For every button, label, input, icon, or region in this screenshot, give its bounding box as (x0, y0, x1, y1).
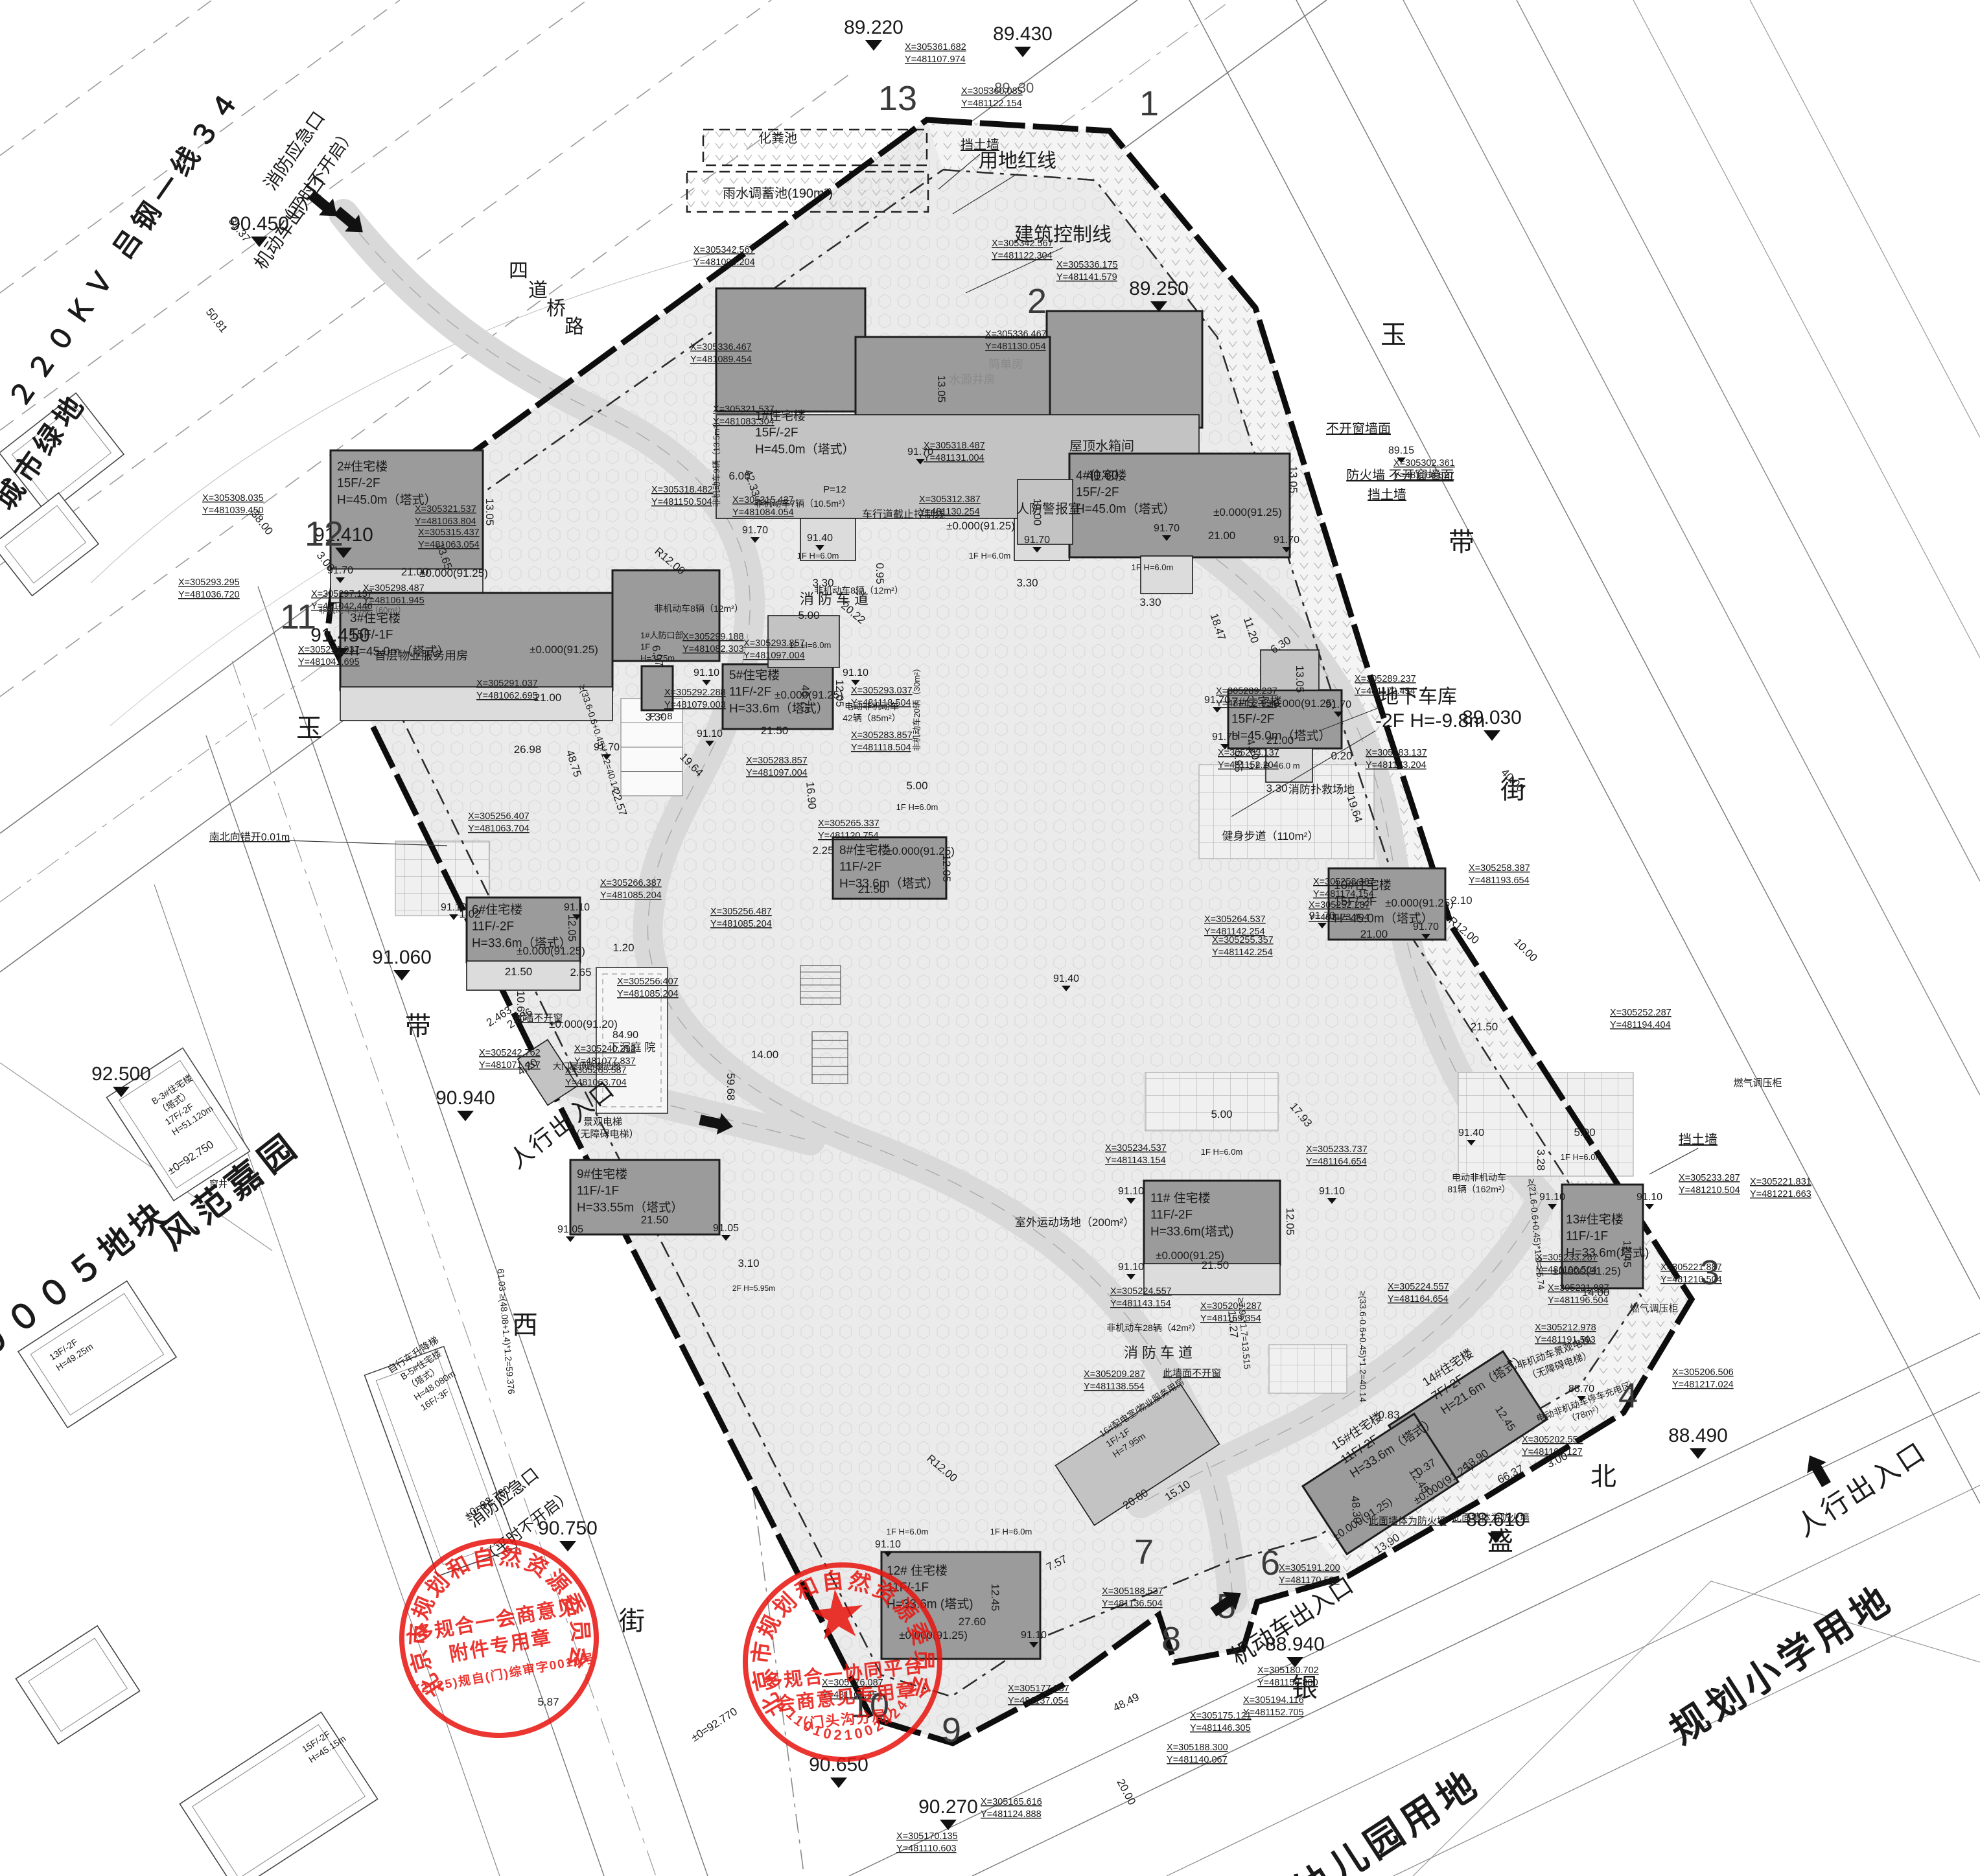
road-elevation: 88.490 (1668, 1425, 1728, 1446)
coordinate-y: Y=481143.154 (1105, 1155, 1166, 1166)
label-fire-site: 消防扑救场地 (1288, 783, 1355, 796)
stamp-center-line: (2025)规自(门)综审字0010号 (414, 1650, 596, 1697)
dimension: 13.05 (483, 498, 496, 526)
spot-elevation: 91.10 (843, 667, 868, 678)
coordinate-x: X=305170.135 (896, 1831, 958, 1842)
street-yudai-east-2: 带 (1449, 528, 1474, 557)
dimension: 3.30 (1266, 782, 1287, 794)
coordinate-y: Y=481097.004 (746, 768, 808, 778)
coordinate-y: Y=481170.534 (1279, 1575, 1340, 1586)
dimension: 26.98 (514, 743, 542, 756)
coordinate-y: Y=481217.024 (1672, 1380, 1734, 1390)
coordinate-y: Y=481082.303 (682, 644, 744, 654)
street-sidaoqiao-2: 道 (528, 280, 548, 301)
label-window-well: 窗井 (209, 1179, 227, 1189)
coordinate-y: Y=481061.945 (363, 596, 425, 606)
level-annotation: ±0.000(91.25) (1213, 506, 1282, 518)
coordinate-y: Y=481196.504 (1536, 1265, 1597, 1275)
dimension: ≥(33.6-0.6+0.45)*1.2=40.14 (1358, 1291, 1368, 1402)
coordinate-x: X=305336.467 (690, 342, 752, 353)
coordinate-x: X=305258.387 (1469, 863, 1530, 874)
coordinate-y: Y=481138.554 (1084, 1382, 1145, 1392)
entrance-arrow (1800, 1450, 1835, 1490)
coordinate-y: Y=481140.067 (1167, 1755, 1228, 1765)
building-label-line: 11F/-2F (1150, 1209, 1193, 1222)
label-ped-entrance-right: 人行出入口 (1791, 1435, 1933, 1542)
boundary-corner-number: 8 (1161, 1620, 1181, 1659)
coordinate-y: Y=481110.603 (896, 1844, 957, 1854)
coordinate-y: Y=481077.837 (574, 1056, 636, 1067)
label-1f6-4: 1F H=6.0m (896, 802, 938, 812)
coordinate-x: X=305221.887 (1548, 1283, 1609, 1293)
spot-elevation: 91.10 (1118, 1262, 1144, 1273)
coordinate-y: Y=481130.254 (919, 507, 980, 517)
coordinate-y: Y=481146.305 (1190, 1723, 1251, 1733)
coordinate-y: Y=481118.504 (851, 698, 911, 708)
coordinate-x: X=305293.295 (178, 577, 240, 588)
coordinate-x: X=305194.116 (1243, 1695, 1304, 1706)
dimension: 13.05 (935, 375, 948, 403)
spot-elevation: 91.05 (557, 1224, 583, 1235)
road-elevation: 89.430 (993, 23, 1053, 45)
elevation-triangle (1484, 730, 1500, 741)
bldg-4-stub (1141, 556, 1193, 594)
street-yudai-west-1: 玉 (296, 714, 322, 743)
street-sidaoqiao-3: 桥 (546, 298, 566, 319)
dimension: 3.30 (1139, 596, 1161, 608)
coordinate-x: X=305315.437 (418, 527, 480, 538)
street-yudai-west-4: 街 (619, 1607, 645, 1636)
label-gas-box-2: 燃气调压柜 (1629, 1303, 1678, 1314)
coordinate-y: Y=481173.204 (1366, 760, 1427, 770)
coordinate-x: X=305283.137 (1218, 748, 1279, 758)
coordinate-y: Y=481130.054 (985, 342, 1046, 352)
label-nm9: 非机动车9辆（13.5m²） (712, 417, 721, 507)
spot-elevation: 88.70 (1568, 1384, 1594, 1395)
coordinate-x: X=305321.537 (415, 504, 476, 515)
label-1f6-10: 1F H=6.0m (1132, 562, 1174, 572)
building-label-line: H=45.0m（塔式） (755, 442, 855, 456)
dimension: 12.05 (566, 914, 578, 942)
dimension: 12.05 (833, 680, 846, 708)
building-label-line: 2#住宅楼 (337, 459, 388, 474)
boundary-corner-number: 11 (280, 597, 316, 636)
coordinate-x: X=305336.175 (1056, 260, 1118, 270)
spot-elevation: 91.10 (1636, 1192, 1662, 1203)
coordinate-x: X=305175.121 (1190, 1711, 1252, 1721)
coordinate-y: Y=481083.304 (713, 417, 775, 427)
coordinate-y: Y=481124.888 (981, 1809, 1042, 1820)
dimension: 5.00 (1574, 1126, 1595, 1139)
building-label-line: 11F/-2F (729, 686, 771, 699)
boundary-corner-number: 13 (878, 79, 917, 118)
coordinate-y: Y=481152.954 (1216, 699, 1277, 709)
coordinate-y: Y=481063.704 (468, 824, 530, 834)
coordinate-x: X=305252.287 (1309, 900, 1370, 910)
building-label-line: 5#住宅楼 (729, 668, 780, 682)
road-elevation: 89.250 (1129, 278, 1189, 299)
label-water-well: 水源井房 (949, 373, 996, 386)
coordinate-x: X=305234.537 (1105, 1143, 1167, 1153)
road-elevation: 89.030 (1462, 707, 1522, 728)
road-line (0, 0, 212, 156)
spot-elevation: 91.70 (1212, 732, 1238, 743)
road-line (1633, 0, 1980, 658)
coordinate-y: Y=481152.204 (1218, 760, 1279, 770)
coordinate-x: X=305224.557 (1388, 1282, 1449, 1292)
coordinate-x: X=305315.437 (732, 495, 794, 505)
coordinate-x: X=305318.482 (651, 485, 713, 495)
dimension: 13.05 (1294, 666, 1306, 693)
coordinate-y: Y=481090.204 (693, 257, 755, 268)
dimension: 21.50 (641, 1214, 669, 1226)
coordinate-x: X=305293.857 (743, 638, 805, 649)
dimension: 50.81 (204, 306, 230, 335)
coordinate-x: X=305224.557 (1110, 1286, 1172, 1297)
spot-elevation: 91.10 (875, 1539, 901, 1550)
spot-elevation: 91.40 (807, 533, 833, 544)
coordinate-y: Y=481142.254 (1212, 947, 1273, 958)
dimension: 13.05 (1287, 466, 1299, 494)
boundary-corner-number: 12 (305, 515, 344, 553)
site-plan-sheet: 1#住宅楼15F/-2FH=45.0m（塔式）2#住宅楼15F/-2FH=45.… (0, 0, 1980, 1876)
label-sunken-1: 84.90 (612, 1030, 638, 1041)
coordinate-y: Y=481079.003 (664, 700, 726, 710)
label-ev42-2: 42辆（85m²） (843, 713, 900, 723)
coordinate-x: X=305283.137 (1366, 748, 1427, 758)
coordinate-y: Y=481150.504 (651, 497, 712, 507)
bldg-7-wing (1261, 650, 1319, 690)
coordinate-y: Y=481141.579 (1056, 272, 1117, 283)
plaza-grid (1145, 1072, 1278, 1131)
label-ev81-2: 81辆（162m²） (1447, 1184, 1510, 1194)
building-label-line: 11F/-1F (1566, 1230, 1608, 1244)
level-annotation: ±0=92.770 (689, 1705, 740, 1744)
coordinate-x: X=305291.037 (476, 678, 538, 689)
road-elevation: 90.750 (538, 1518, 598, 1539)
coordinate-y: Y=481089.454 (690, 354, 752, 365)
coordinate-x: X=305308.035 (202, 493, 264, 504)
dimension: 16.90 (804, 782, 819, 810)
coordinate-x: X=305342.567 (693, 245, 755, 255)
building-label-line: 11F/-2F (839, 861, 881, 874)
coordinate-y: Y=481085.204 (710, 919, 772, 929)
plaza-grid (1269, 1345, 1347, 1393)
spot-elevation: 91.10 (1118, 1186, 1144, 1197)
building-label-line: 8#住宅楼 (839, 843, 890, 857)
spot-elevation: 91.70 (1154, 523, 1180, 534)
dimension: 1.20 (612, 942, 634, 954)
coordinate-x: X=305266.387 (600, 878, 662, 888)
street-sidaoqiao-1: 四 (509, 261, 528, 282)
dimension: 3.10 (738, 1257, 759, 1269)
coordinate-y: Y=481159.354 (1200, 1314, 1261, 1324)
label-retain-wall-right2: 挡土墙 (1679, 1132, 1718, 1147)
building-label-line: 15F/-2F (1076, 486, 1119, 500)
coordinate-y: Y=481085.204 (600, 890, 662, 901)
level-annotation: ±0.000(91.25) (1385, 897, 1454, 909)
road-elevation: 90.270 (918, 1796, 978, 1818)
label-fitness: 健身步道（110m²） (1222, 830, 1319, 842)
coordinate-y: Y=481164.654 (1388, 1294, 1449, 1304)
dimension: 21.50 (858, 883, 886, 896)
label-nowindow-ne: 不开窗墙面 (1326, 421, 1391, 436)
coordinate-y: Y=481221.663 (1750, 1189, 1811, 1199)
coordinate-y: Y=481173.404 (1309, 912, 1369, 923)
elevation-triangle (559, 1541, 576, 1551)
street-yudai-east-1: 玉 (1380, 321, 1406, 349)
coordinate-y: Y=481107.974 (905, 54, 966, 65)
stamp-star: ★ (804, 1575, 872, 1656)
road-elevation: 88.940 (1265, 1634, 1325, 1655)
dimension: 2.10 (1450, 894, 1472, 907)
coordinate-x: X=305293.037 (851, 686, 913, 696)
coordinate-x: X=305292.288 (664, 688, 726, 698)
label-1f6-7: 1F H=6.0m (1561, 1152, 1603, 1162)
label-lift-1: 景观电梯 (583, 1117, 622, 1128)
coordinate-x: X=305336.467 (985, 329, 1047, 340)
coordinate-y: Y=481174.154 (1313, 889, 1374, 899)
building-label-line: 13#住宅楼 (1566, 1212, 1624, 1227)
dimension: 21.00 (1208, 529, 1236, 542)
nb-0005-b (180, 1712, 377, 1876)
dimension: 12.05 (1284, 1208, 1296, 1236)
dimension: 21.50 (761, 724, 789, 737)
coordinate-y: Y=481097.004 (743, 651, 805, 661)
spot-elevation: 91.10 (1319, 1186, 1345, 1197)
road-elevation: 91.060 (372, 947, 432, 968)
dimension: 27.60 (959, 1615, 986, 1628)
label-1f6-2: 1F H=6.0m (797, 551, 839, 561)
road-line (1403, 0, 1980, 1095)
coordinate-x: X=305256.487 (710, 907, 772, 917)
label-gas-box-1: 燃气调压柜 (1733, 1077, 1782, 1089)
building-label-line: 1F (640, 642, 650, 652)
label-rain-pool: 雨水调蓄池(190m³) (723, 186, 833, 201)
coordinate-x: X=305342.567 (992, 238, 1053, 249)
coordinate-y: Y=481041.695 (298, 657, 360, 667)
road-elevation: 91.450 (310, 625, 370, 646)
dimension: 0.95 (874, 562, 886, 584)
coordinate-y: Y=481143.154 (1110, 1299, 1171, 1309)
elevation-triangle (566, 1236, 575, 1242)
dimension: 10.00 (1031, 498, 1043, 526)
dimension: 21.00 (1266, 734, 1294, 747)
coordinate-y: Y=481039.450 (202, 505, 264, 516)
coordinate-x: X=305242.762 (479, 1048, 541, 1058)
coordinate-y: Y=481142.254 (1204, 927, 1265, 937)
dimension: 5.00 (906, 780, 927, 792)
label-nm28: 非机动车28辆（42m²） (1106, 1323, 1200, 1333)
dimension: 21.50 (505, 966, 533, 978)
dimension: 5.00 (798, 609, 819, 621)
leader-line (1649, 1148, 1698, 1174)
dimension: 12.05 (940, 855, 953, 883)
building-label-line: 9#住宅楼 (577, 1167, 627, 1181)
coordinate-x: X=305289.237 (1355, 674, 1416, 684)
label-p12: P=12 (823, 484, 846, 495)
label-1f6-5: 1F H=6.0m (1201, 1147, 1243, 1157)
label-2f595: 2F H=5.95m (732, 1284, 775, 1293)
elevation-triangle (1014, 47, 1031, 57)
label-nm20: 非机动车20辆（30m²） (912, 664, 922, 751)
label-roof-tank: 屋顶水箱间 (1069, 439, 1134, 454)
elevation-triangle (1645, 1204, 1654, 1210)
building-label-line: H=33.55m（塔式） (577, 1200, 683, 1214)
building-label-line: 12# 住宅楼 (887, 1564, 948, 1578)
label-septic: 化粪池 (758, 131, 797, 146)
building-label-line: 15F/-2F (755, 426, 798, 440)
label-simple-house: 简单房 (988, 358, 1023, 371)
elevation-triangle (393, 970, 410, 980)
coordinate-x: X=305298.487 (363, 583, 425, 594)
coordinate-y: Y=481131.004 (924, 453, 984, 463)
coordinate-x: X=305206.506 (1672, 1367, 1734, 1378)
road-elevation: 89.220 (844, 17, 903, 38)
spot-elevation: 91.10 (693, 667, 719, 678)
label-sport: 室外运动场地（200m²） (1015, 1216, 1134, 1229)
building-label-line: 15F/-2F (337, 477, 380, 491)
spot-elevation: 91.70 (1274, 535, 1299, 546)
spot-elevation: 91.05 (713, 1223, 739, 1234)
coordinate-x: X=305188.300 (1167, 1743, 1228, 1753)
street-yinsheng-3: 北 (1590, 1463, 1616, 1491)
coordinate-y: Y=481136.504 (1102, 1599, 1163, 1609)
spot-elevation: 91.40 (1053, 973, 1079, 984)
street-yudai-west-3: 西 (512, 1311, 538, 1339)
coordinate-x: X=305233.287 (1536, 1253, 1598, 1263)
building-label-line: 15F/-2F (1231, 713, 1275, 726)
label-retain-wall-top: 挡土墙 (961, 137, 999, 152)
coordinate-x: X=305221.831 (1750, 1177, 1811, 1187)
spot-elevation: 91.70 (1413, 921, 1439, 932)
coordinate-y: Y=481194.404 (1610, 1020, 1671, 1030)
elevation-triangle (449, 914, 458, 920)
coordinate-y: Y=481191.503 (1535, 1335, 1596, 1345)
coordinate-x: X=305191.200 (1279, 1563, 1340, 1573)
coordinate-x: X=305233.287 (1679, 1173, 1740, 1183)
coordinate-y: Y=481122.304 (992, 251, 1053, 261)
boundary-corner-number: 2 (1027, 282, 1047, 321)
coordinate-x: X=305256.407 (617, 977, 679, 987)
coordinate-x: X=305188.537 (1102, 1586, 1163, 1597)
street-yinsheng-2: 盛 (1487, 1527, 1513, 1556)
coordinate-y: Y=481118.504 (851, 743, 911, 753)
label-renfang-alarm: 人防警报室 (1016, 502, 1081, 516)
spot-elevation: 91.70 (1325, 699, 1351, 710)
coordinate-x: X=305209.287 (1200, 1301, 1262, 1312)
road-elevation: 90.940 (436, 1087, 495, 1109)
label-220kv-line: ２２０ＫＶ 吕钢一线３４ (3, 81, 248, 413)
coordinate-y: Y=481084.054 (732, 507, 794, 518)
dimension: 5.00 (1211, 1108, 1232, 1120)
coordinate-y: Y=481164.654 (1306, 1157, 1367, 1167)
boundary-corner-number: 3 (1700, 1253, 1719, 1292)
coordinate-x: X=305177.887 (1008, 1684, 1069, 1694)
coordinate-y: Y=481137.054 (1008, 1696, 1069, 1706)
dimension: 21.50 (1471, 1021, 1498, 1033)
label-kindergarten: 幼儿园用地 (1285, 1762, 1487, 1876)
dimension: 3.30 (812, 577, 833, 589)
coordinate-x: X=305318.487 (924, 441, 985, 451)
coordinate-y: Y=481062.695 (476, 691, 538, 701)
spot-elevation: 91.10 (1021, 1630, 1047, 1641)
boundary-corner-number: 9 (942, 1711, 961, 1750)
coordinate-x: X=305291.037 (298, 645, 360, 655)
coordinate-x: X=305233.737 (1306, 1144, 1368, 1155)
coordinate-x: X=305212.978 (1535, 1323, 1596, 1333)
spot-elevation: 91.10 (564, 902, 590, 913)
coordinate-y: Y=481120.754 (818, 831, 879, 841)
boundary-corner-number: 6 (1261, 1544, 1280, 1582)
spot-elevation: 91.10 (1539, 1192, 1565, 1203)
label-retain-wall-right: 挡土墙 (1368, 487, 1406, 502)
dimension: 2.25 (812, 844, 833, 857)
elevation-triangle (830, 1778, 847, 1788)
coordinate-y: Y=481063.804 (415, 516, 476, 527)
dimension: 3.30 (645, 711, 666, 723)
boundary-corner-number: 1 (1139, 84, 1159, 123)
elevation-triangle (1690, 1448, 1706, 1459)
bldg-1-tower-r (1047, 311, 1202, 428)
dimension: 59.68 (725, 1073, 737, 1101)
coordinate-x: X=305265.587 (565, 1065, 627, 1076)
building-label-line: H=33.6m(塔式) (1150, 1224, 1233, 1238)
level-annotation: ±0.000(91.25) (530, 643, 598, 656)
dimension: 5.87 (537, 1696, 559, 1708)
coordinate-y: Y=481172.454 (1355, 686, 1415, 697)
coordinate-y: Y=481196.127 (1522, 1447, 1583, 1457)
dimension: 21.00 (1360, 928, 1388, 940)
coordinate-x: X=305299.188 (682, 632, 744, 642)
coordinate-y: Y=481085.204 (617, 989, 679, 999)
coordinate-y: Y=481036.720 (178, 590, 240, 600)
spot-elevation: 91.70 (1024, 535, 1050, 546)
label-red-line: 用地红线 (979, 150, 1056, 172)
boundary-corner-number: 7 (1134, 1533, 1154, 1571)
coordinate-x: X=305283.857 (746, 756, 808, 766)
level-annotation: ±0.000(91.25) (419, 567, 488, 579)
coordinate-y: Y=481063.054 (418, 540, 480, 550)
label-offset: 南北向错开0.01m (209, 831, 290, 843)
coordinate-y: Y=481152.705 (1243, 1708, 1304, 1718)
label-1f6-8: 1F H=6.0m (887, 1527, 929, 1536)
level-annotation: ±0.000(91.25) (517, 945, 585, 957)
road-line (1517, 0, 1980, 881)
street-yudai-west-2: 带 (405, 1012, 431, 1041)
coordinate-x: X=305258.387 (1313, 877, 1375, 887)
coordinate-x: X=305265.337 (818, 818, 879, 829)
coordinate-x: X=305209.287 (1084, 1369, 1145, 1380)
dimension: 2.65 (570, 966, 591, 979)
building-label-line: 11# 住宅楼 (1150, 1191, 1211, 1205)
label-firewall-s1: 此面墙体为防火墙 (1369, 1516, 1447, 1527)
road-elevation: 88.610 (1466, 1509, 1526, 1531)
dimension: 3.28 (1535, 1149, 1547, 1170)
label-ev81-1: 电动非机动车 (1452, 1172, 1506, 1183)
building-label-line: 1#人防口部 (640, 631, 683, 640)
label-fire-lane-2: 消防车道 (1124, 1345, 1196, 1361)
label-nowin-wall-2: 此墙面不开窗 (1163, 1367, 1221, 1379)
street-sidaoqiao-4: 路 (565, 316, 584, 338)
coordinate-x: X=305289.237 (1216, 686, 1277, 697)
label-40-60: 40.60 (1086, 469, 1119, 483)
dimension: 20.00 (1114, 1777, 1138, 1807)
road-line (1750, 0, 1980, 437)
coordinate-y: Y=481122.154 (961, 98, 1022, 109)
elevation-triangle (865, 40, 882, 51)
label-nm8a: 非机动车8辆（12m²） (654, 603, 743, 614)
